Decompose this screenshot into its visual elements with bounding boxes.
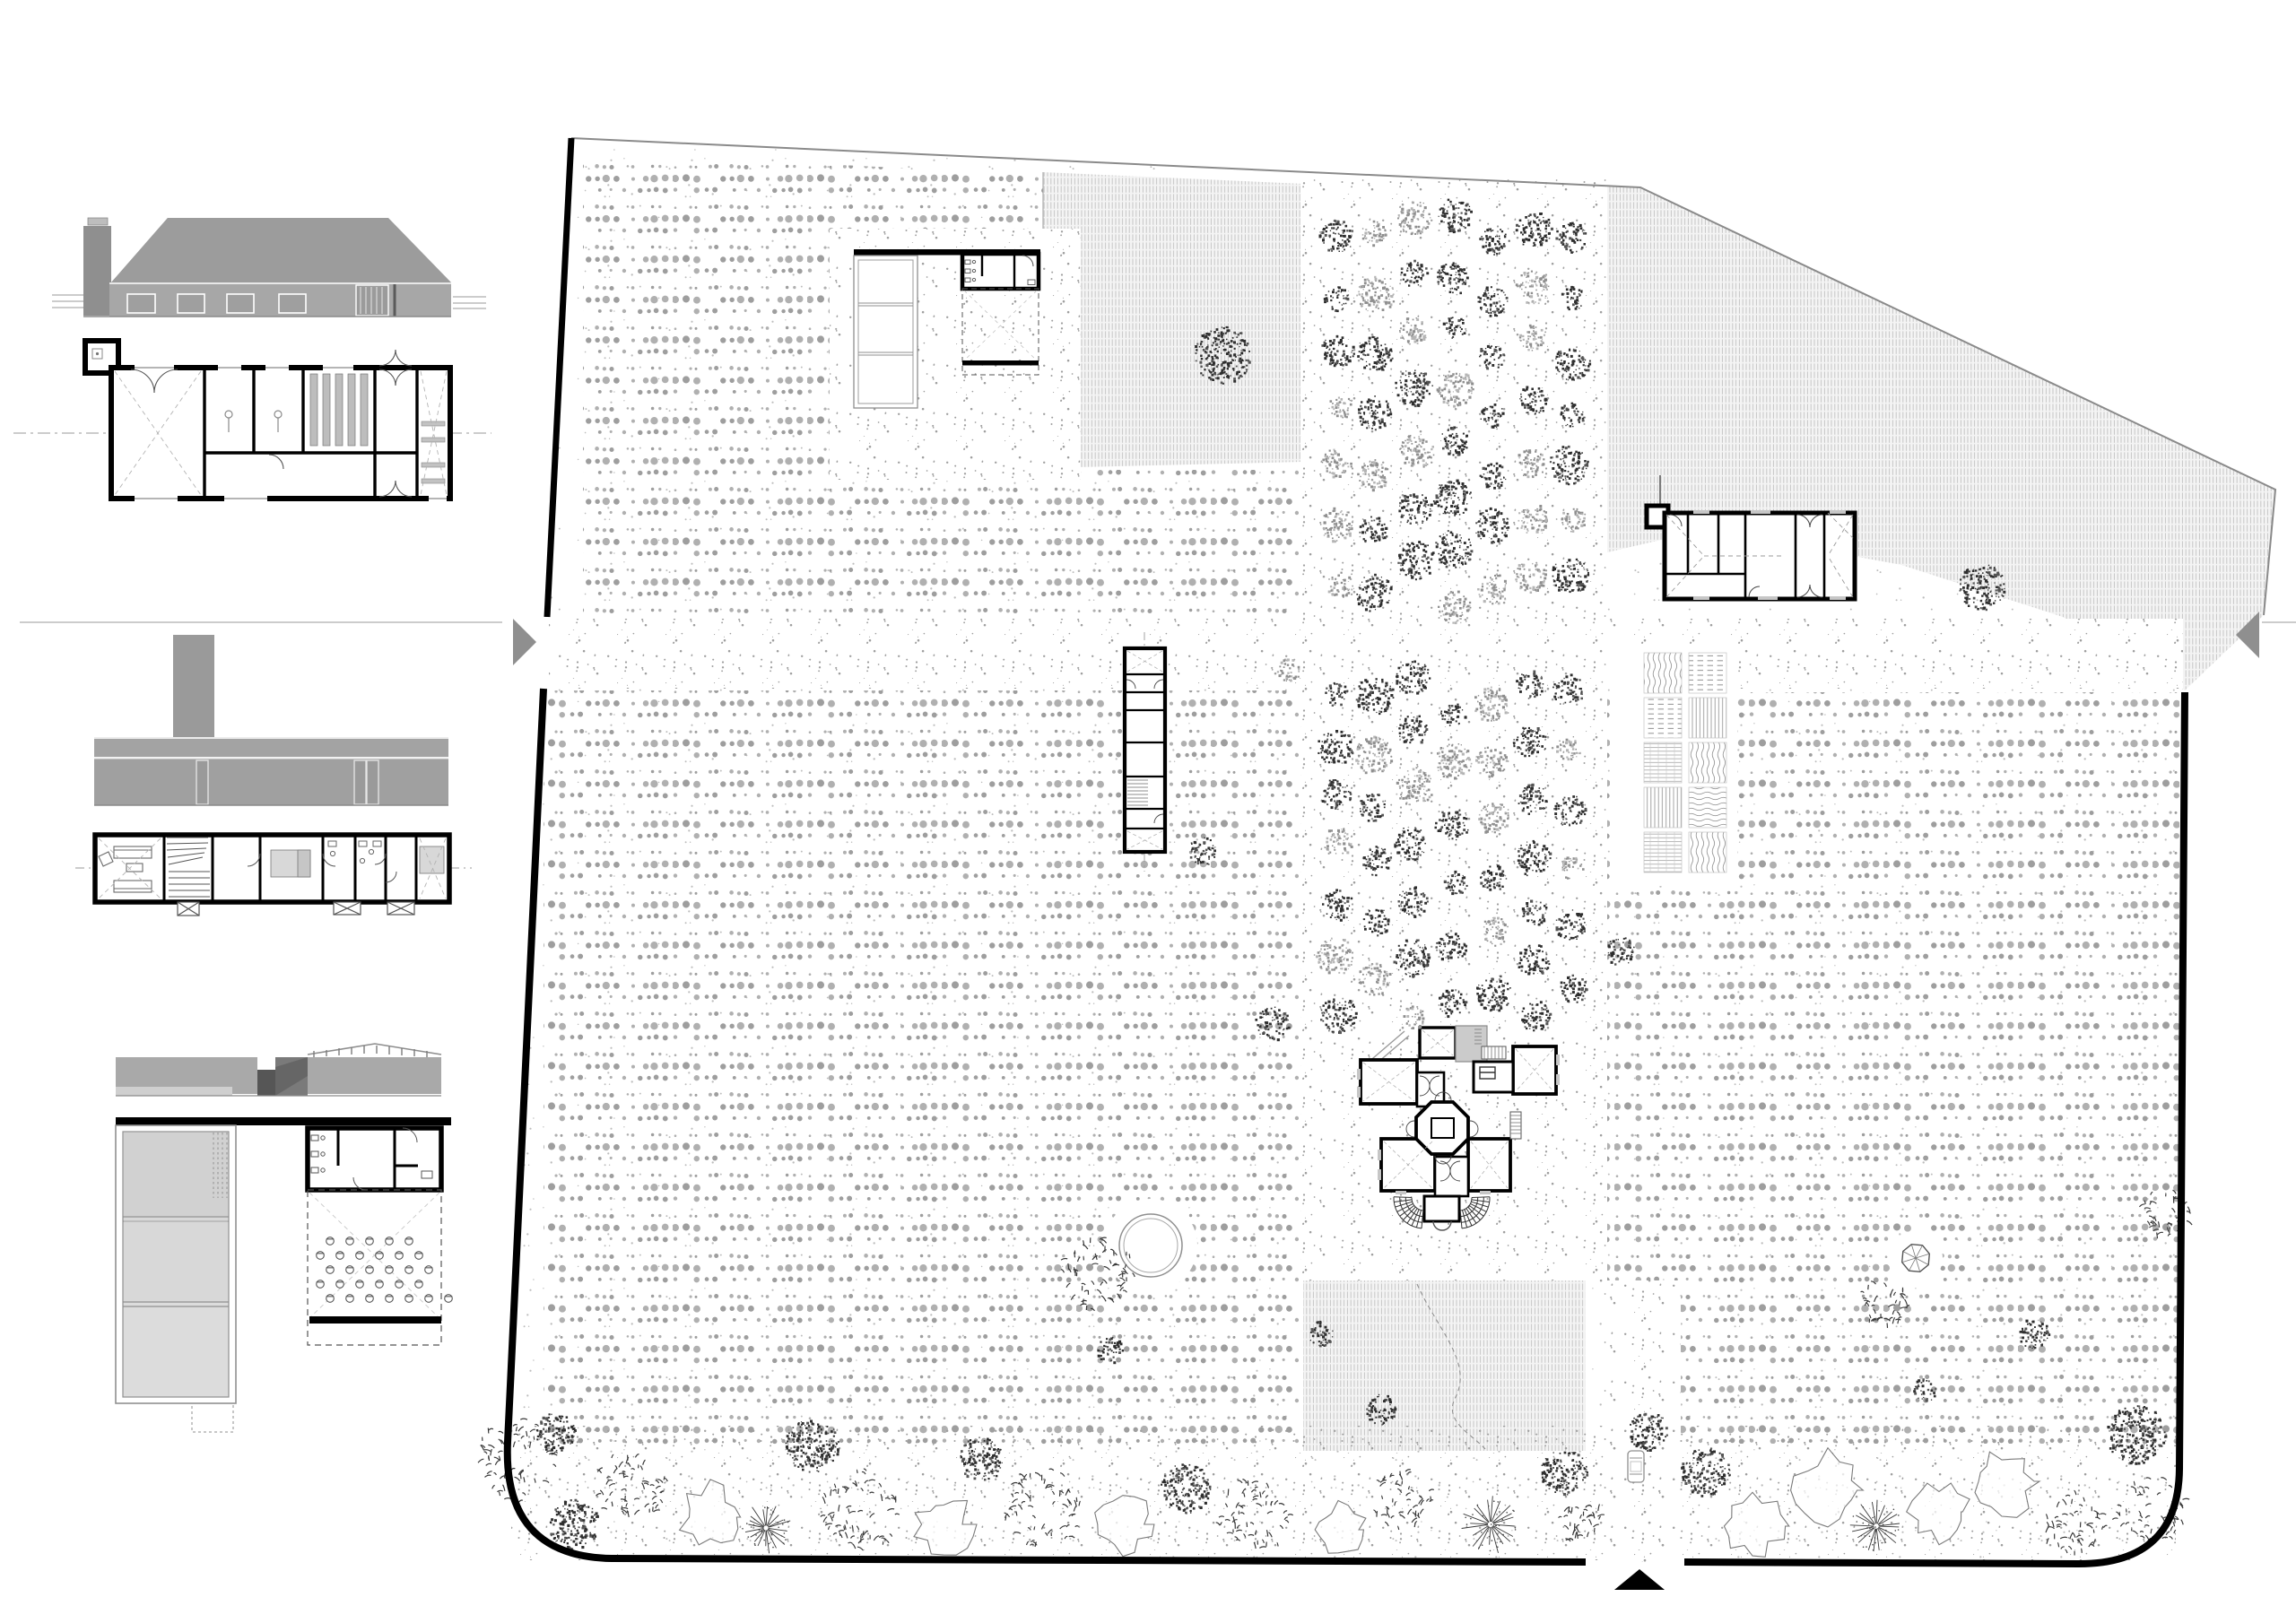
garden-plot <box>1644 653 1682 693</box>
grass-patch <box>1303 1280 1586 1451</box>
west-entry-arrow <box>513 619 536 665</box>
chimney-cap <box>88 218 108 225</box>
garden-plot <box>1644 742 1682 783</box>
pool-outlet <box>192 1403 233 1432</box>
north-arrow <box>1614 1569 1665 1590</box>
garden-plot <box>1689 832 1726 872</box>
garden-plot <box>1644 787 1682 828</box>
wall-left-light <box>116 1087 232 1096</box>
garden-wall <box>116 1117 451 1125</box>
building-b-plan <box>75 835 472 916</box>
dark-door <box>257 1070 275 1096</box>
roof <box>111 218 451 282</box>
site-plan-sheet-svg <box>0 0 2296 1623</box>
roof-slab <box>94 738 448 757</box>
drawing-sheet <box>0 0 2296 1623</box>
pond <box>1104 1199 1197 1292</box>
parked-car <box>1628 1451 1644 1482</box>
garden-plot <box>1689 698 1726 738</box>
site-long-building <box>1125 632 1165 872</box>
garden-plot <box>1689 787 1726 828</box>
garden-plot <box>1689 742 1726 783</box>
building-c-plan <box>116 1117 452 1432</box>
building-a-plan <box>13 341 491 501</box>
wall-right <box>308 1057 441 1094</box>
building-b-elevation <box>94 635 448 805</box>
crop-field-lower-left <box>544 690 1299 1448</box>
court-stage-wall <box>309 1316 441 1324</box>
gazebo-parasol <box>1889 1231 1943 1285</box>
road-band-speckle <box>549 619 2183 689</box>
slatted-door <box>356 284 395 317</box>
meadow-hatch-upper-middle <box>1043 172 1303 468</box>
garden-plot <box>1644 832 1682 872</box>
wall <box>94 759 448 805</box>
canopy-roof <box>308 1044 441 1055</box>
building-a-elevation <box>52 218 486 317</box>
garden-plot <box>1689 653 1726 693</box>
chairs <box>317 1237 453 1303</box>
building-c-elevation <box>116 1044 441 1096</box>
garden-plot <box>1644 698 1682 738</box>
chimney <box>83 226 111 316</box>
